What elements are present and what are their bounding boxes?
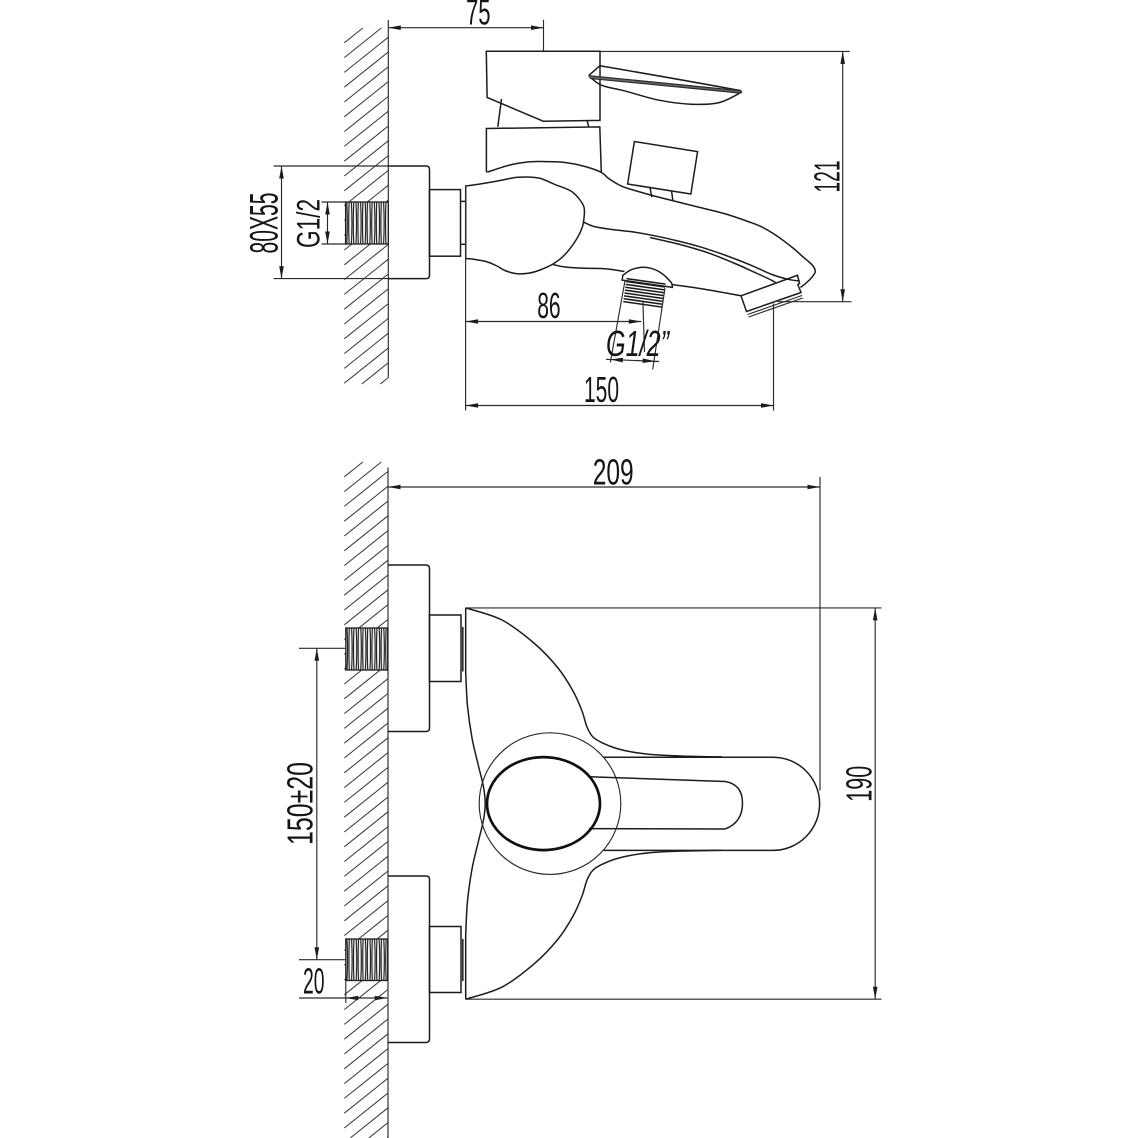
svg-text:150: 150 [584,369,619,410]
svg-text:G1/2: G1/2 [291,199,327,248]
svg-text:G1/2”: G1/2” [606,323,670,364]
svg-text:20: 20 [303,961,325,1002]
svg-text:86: 86 [537,285,560,326]
svg-text:75: 75 [466,0,491,33]
svg-text:150±20: 150±20 [280,762,321,845]
svg-text:209: 209 [593,451,634,492]
svg-text:190: 190 [839,766,880,802]
svg-text:80X55: 80X55 [243,193,287,254]
svg-text:121: 121 [807,161,848,193]
